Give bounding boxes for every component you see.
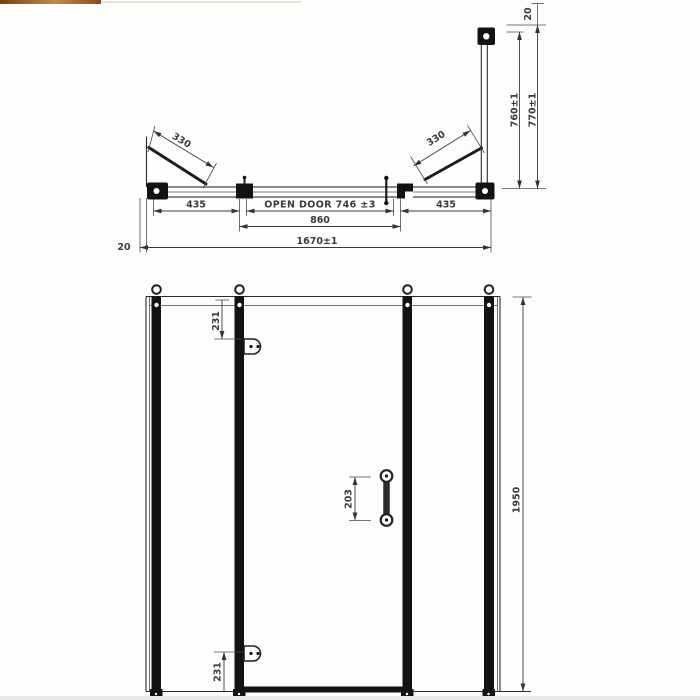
dim-203-label: 203 xyxy=(344,489,355,509)
dim-1950-label: 1950 xyxy=(512,486,523,513)
dim-231-top-label: 231 xyxy=(211,311,222,331)
hinge-screw xyxy=(256,652,259,655)
shower-enclosure-drawing: 330 330 xyxy=(0,0,700,700)
technical-drawing-page: 330 330 xyxy=(0,0,700,700)
dim-20-top-label: 20 xyxy=(523,7,534,21)
foot-screw xyxy=(406,693,408,695)
door-open-panel-right xyxy=(425,148,482,180)
wall-profile-right xyxy=(484,296,494,692)
hinge-screw xyxy=(256,345,259,348)
hinge-profile xyxy=(235,296,245,692)
return-panel-cap-hole xyxy=(483,33,489,39)
dim-20-left-label: 20 xyxy=(117,242,131,253)
foot-screw xyxy=(155,693,157,695)
dim-1670-label: 1670±1 xyxy=(296,236,337,247)
dim-435-left-label: 435 xyxy=(186,200,206,211)
profile-slot xyxy=(487,303,491,307)
dim-760-label: 760±1 xyxy=(510,93,521,127)
plan-handle-knob-top xyxy=(384,176,388,180)
hinge-block xyxy=(236,184,253,199)
bottom-edge-strip xyxy=(0,696,700,700)
plan-handle-knob-bottom xyxy=(384,201,388,205)
dim-231-bottom-label: 231 xyxy=(213,662,224,682)
ext-tick xyxy=(203,163,217,188)
handle-screw xyxy=(385,474,388,477)
door-open-panel-left xyxy=(149,148,206,185)
dim-860-label: 860 xyxy=(310,215,330,226)
door-closing-profile xyxy=(403,296,413,692)
knob-icon xyxy=(152,285,161,294)
front-view: 231 231 203 1950 xyxy=(146,285,532,697)
foot-screw xyxy=(487,693,489,695)
knob-icon xyxy=(235,285,244,294)
hinge-screw xyxy=(249,652,252,655)
knob-icon xyxy=(403,285,412,294)
foot-screw xyxy=(238,693,240,695)
dim-435-right-label: 435 xyxy=(436,200,456,211)
plan-view: 330 330 xyxy=(117,3,546,253)
dim-open-door-label: OPEN DOOR 746 ±3 xyxy=(264,200,376,211)
door-bottom-rail xyxy=(238,687,408,693)
wall-profile-left xyxy=(152,296,162,692)
pivot-pin-head xyxy=(243,176,247,180)
dim-330-right-label: 330 xyxy=(425,129,448,149)
ext-tick xyxy=(411,157,428,185)
profile-slot xyxy=(237,303,241,307)
handle-screw xyxy=(385,518,388,521)
ext-tick xyxy=(468,126,485,154)
left-corner-hole xyxy=(154,188,160,194)
profile-slot xyxy=(154,303,158,307)
profile-slot xyxy=(405,303,409,307)
dim-770-label: 770±1 xyxy=(528,93,539,127)
door-edge-notch xyxy=(405,192,413,199)
knob-icon xyxy=(485,285,494,294)
hinge-screw xyxy=(249,345,252,348)
right-corner-hole xyxy=(482,188,488,194)
